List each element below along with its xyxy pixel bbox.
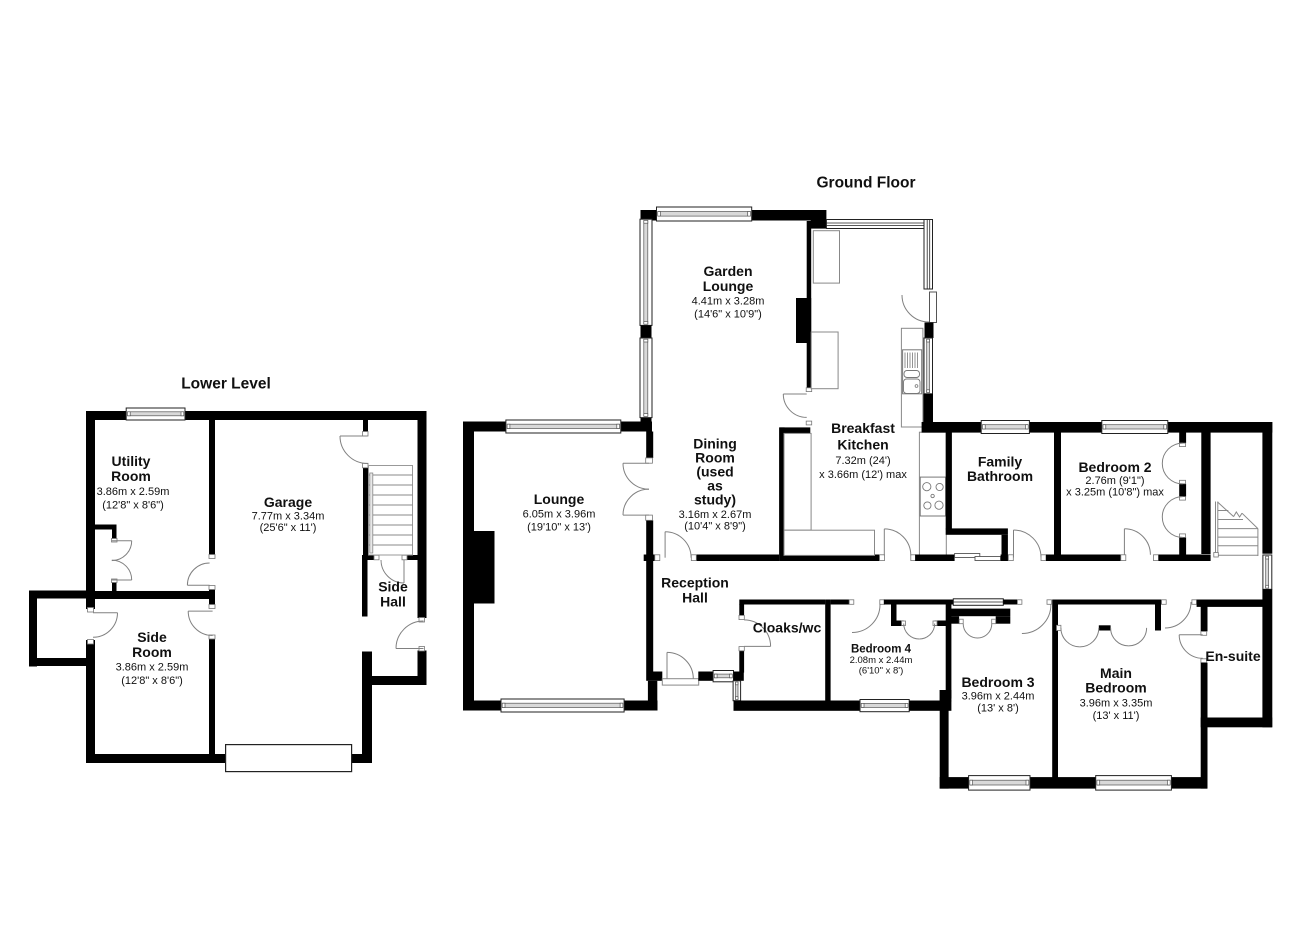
svg-text:Lounge: Lounge [534, 491, 585, 507]
svg-text:(6'10" x 8'): (6'10" x 8') [859, 666, 904, 677]
svg-text:Bathroom: Bathroom [967, 468, 1033, 484]
svg-text:3.96m x 2.44m: 3.96m x 2.44m [962, 691, 1035, 703]
svg-text:3.86m x 2.59m: 3.86m x 2.59m [97, 486, 170, 498]
svg-text:Hall: Hall [682, 590, 708, 606]
svg-text:Side: Side [137, 629, 167, 645]
svg-text:Bedroom 3: Bedroom 3 [961, 674, 1034, 690]
svg-text:Lounge: Lounge [703, 278, 754, 294]
svg-text:(13' x 8'): (13' x 8') [977, 703, 1019, 715]
svg-text:2.08m x 2.44m: 2.08m x 2.44m [850, 655, 913, 666]
svg-text:Bedroom 4: Bedroom 4 [851, 644, 912, 656]
svg-text:Utility: Utility [112, 453, 151, 469]
svg-text:Bedroom 2: Bedroom 2 [1078, 459, 1151, 475]
svg-text:En-suite: En-suite [1205, 648, 1260, 664]
svg-text:(12'8" x 8'6"): (12'8" x 8'6") [102, 500, 164, 512]
svg-text:Side: Side [378, 579, 408, 595]
svg-text:Garden: Garden [703, 263, 752, 279]
svg-text:Hall: Hall [380, 594, 406, 610]
svg-text:7.32m (24'): 7.32m (24') [835, 455, 890, 467]
svg-text:(14'6" x 10'9"): (14'6" x 10'9") [694, 309, 762, 321]
svg-text:Cloaks/wc: Cloaks/wc [753, 620, 822, 636]
svg-text:Garage: Garage [264, 494, 312, 510]
svg-text:(25'6" x 11'): (25'6" x 11') [260, 522, 317, 534]
svg-text:x 3.25m (10'8") max: x 3.25m (10'8") max [1066, 487, 1164, 499]
svg-text:(19'10" x 13'): (19'10" x 13') [527, 522, 591, 534]
svg-text:(12'8" x 8'6"): (12'8" x 8'6") [121, 675, 183, 687]
svg-text:Lower Level: Lower Level [181, 376, 271, 393]
svg-text:6.05m x 3.96m: 6.05m x 3.96m [523, 509, 596, 521]
svg-text:(13' x 11'): (13' x 11') [1093, 710, 1140, 722]
svg-text:3.96m x 3.35m: 3.96m x 3.35m [1080, 698, 1153, 710]
svg-text:Ground Floor: Ground Floor [816, 175, 915, 192]
svg-text:3.16m x 2.67m: 3.16m x 2.67m [679, 509, 752, 521]
svg-text:Bedroom: Bedroom [1085, 680, 1146, 696]
svg-text:2.76m (9'1"): 2.76m (9'1") [1085, 475, 1144, 487]
svg-text:Room: Room [132, 644, 172, 660]
svg-text:x 3.66m (12') max: x 3.66m (12') max [819, 469, 907, 481]
svg-text:7.77m x 3.34m: 7.77m x 3.34m [252, 511, 325, 523]
svg-text:Kitchen: Kitchen [837, 437, 888, 453]
svg-text:4.41m x 3.28m: 4.41m x 3.28m [692, 296, 765, 308]
svg-text:(10'4" x 8'9"): (10'4" x 8'9") [684, 521, 746, 533]
svg-text:Reception: Reception [661, 575, 729, 591]
svg-text:3.86m x 2.59m: 3.86m x 2.59m [116, 662, 189, 674]
svg-text:study): study) [694, 492, 736, 508]
svg-text:Breakfast: Breakfast [831, 420, 895, 436]
svg-text:Room: Room [111, 468, 151, 484]
